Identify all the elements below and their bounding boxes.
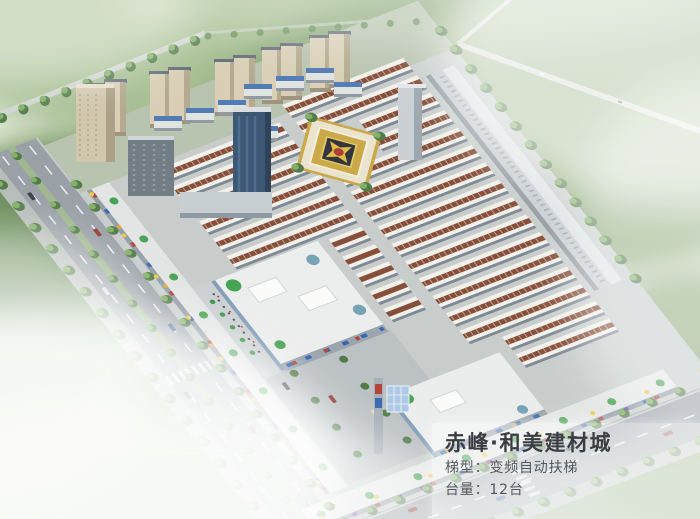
spec-line-unit-count: 台量：12台: [445, 481, 700, 500]
rendering-root: 赤峰·和美建材城 梯型：变频自动扶梯 台量：12台: [0, 0, 700, 519]
caption-panel: 赤峰·和美建材城 梯型：变频自动扶梯 台量：12台: [432, 423, 700, 519]
project-title: 赤峰·和美建材城: [445, 430, 700, 456]
spec-line-escalator-type: 梯型：变频自动扶梯: [445, 459, 700, 478]
